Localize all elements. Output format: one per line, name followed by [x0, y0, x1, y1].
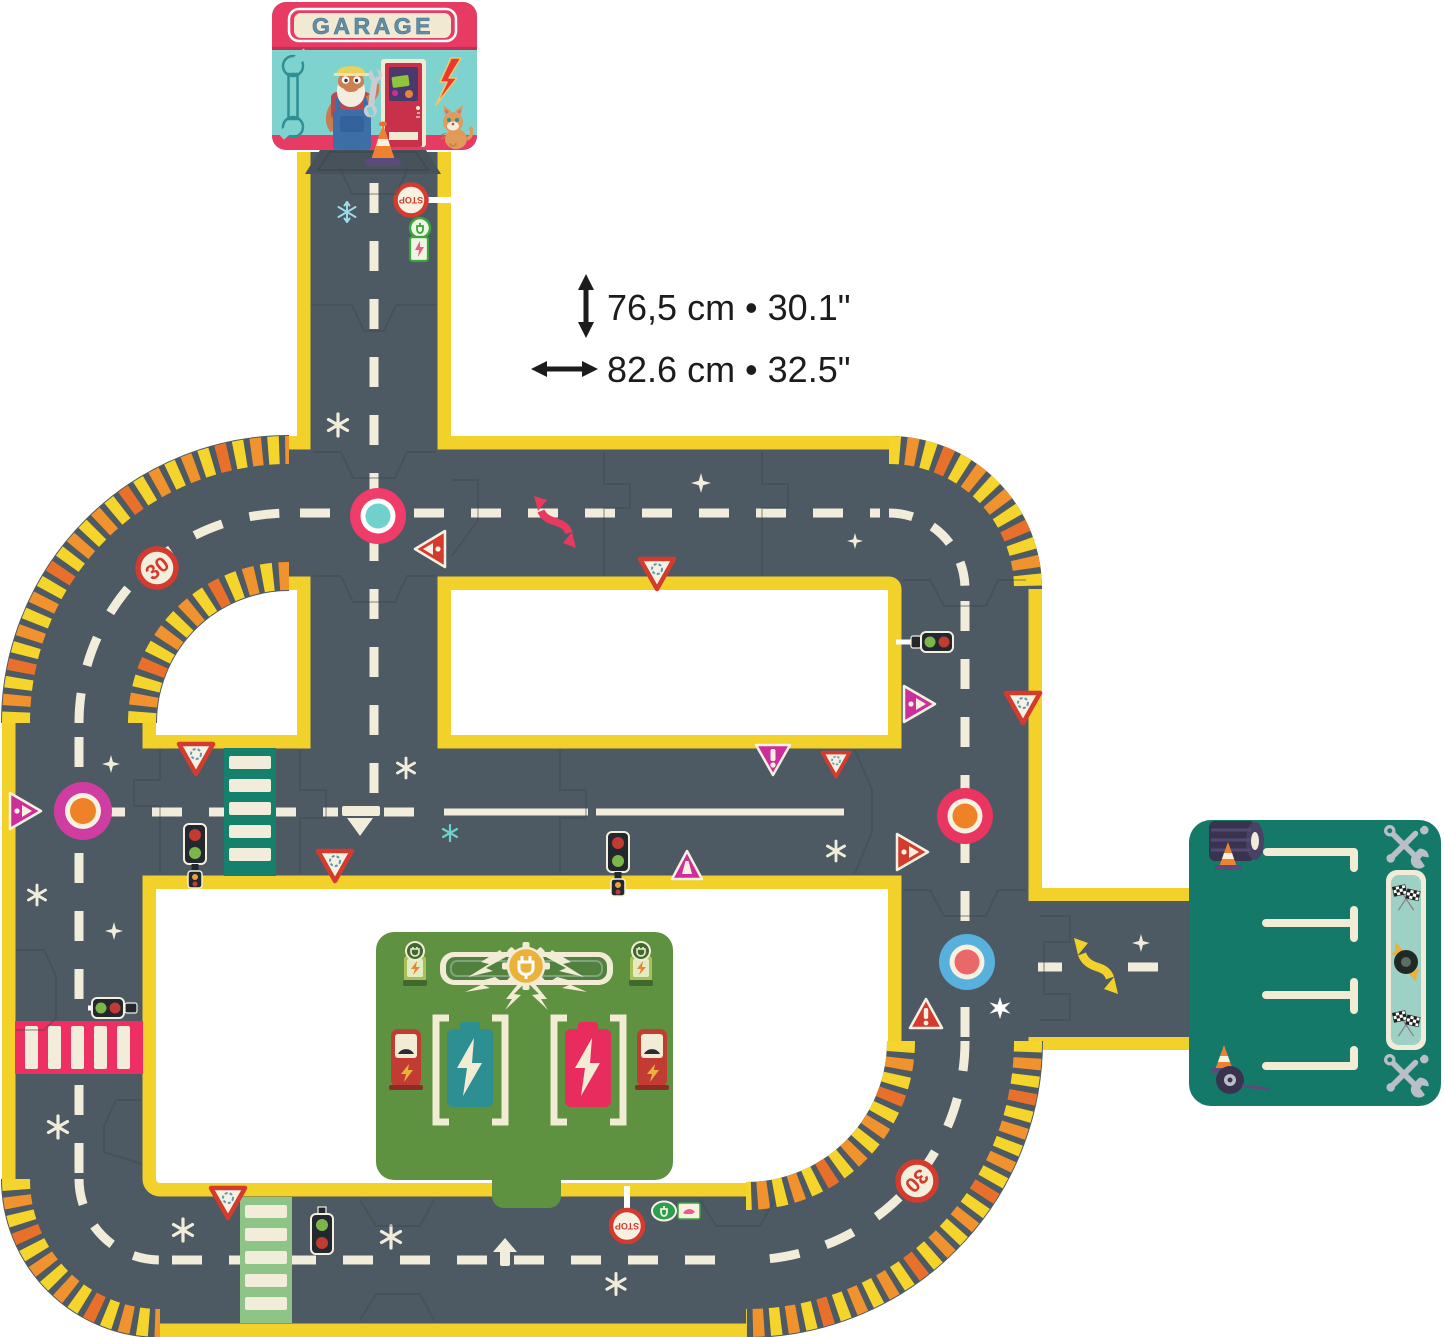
svg-text:STOP: STOP — [399, 195, 423, 205]
svg-text:GARAGE: GARAGE — [312, 13, 434, 39]
svg-text:82.6 cm • 32.5": 82.6 cm • 32.5" — [607, 349, 851, 390]
svg-text:76,5 cm • 30.1": 76,5 cm • 30.1" — [607, 287, 851, 328]
svg-text:STOP: STOP — [615, 1221, 639, 1231]
